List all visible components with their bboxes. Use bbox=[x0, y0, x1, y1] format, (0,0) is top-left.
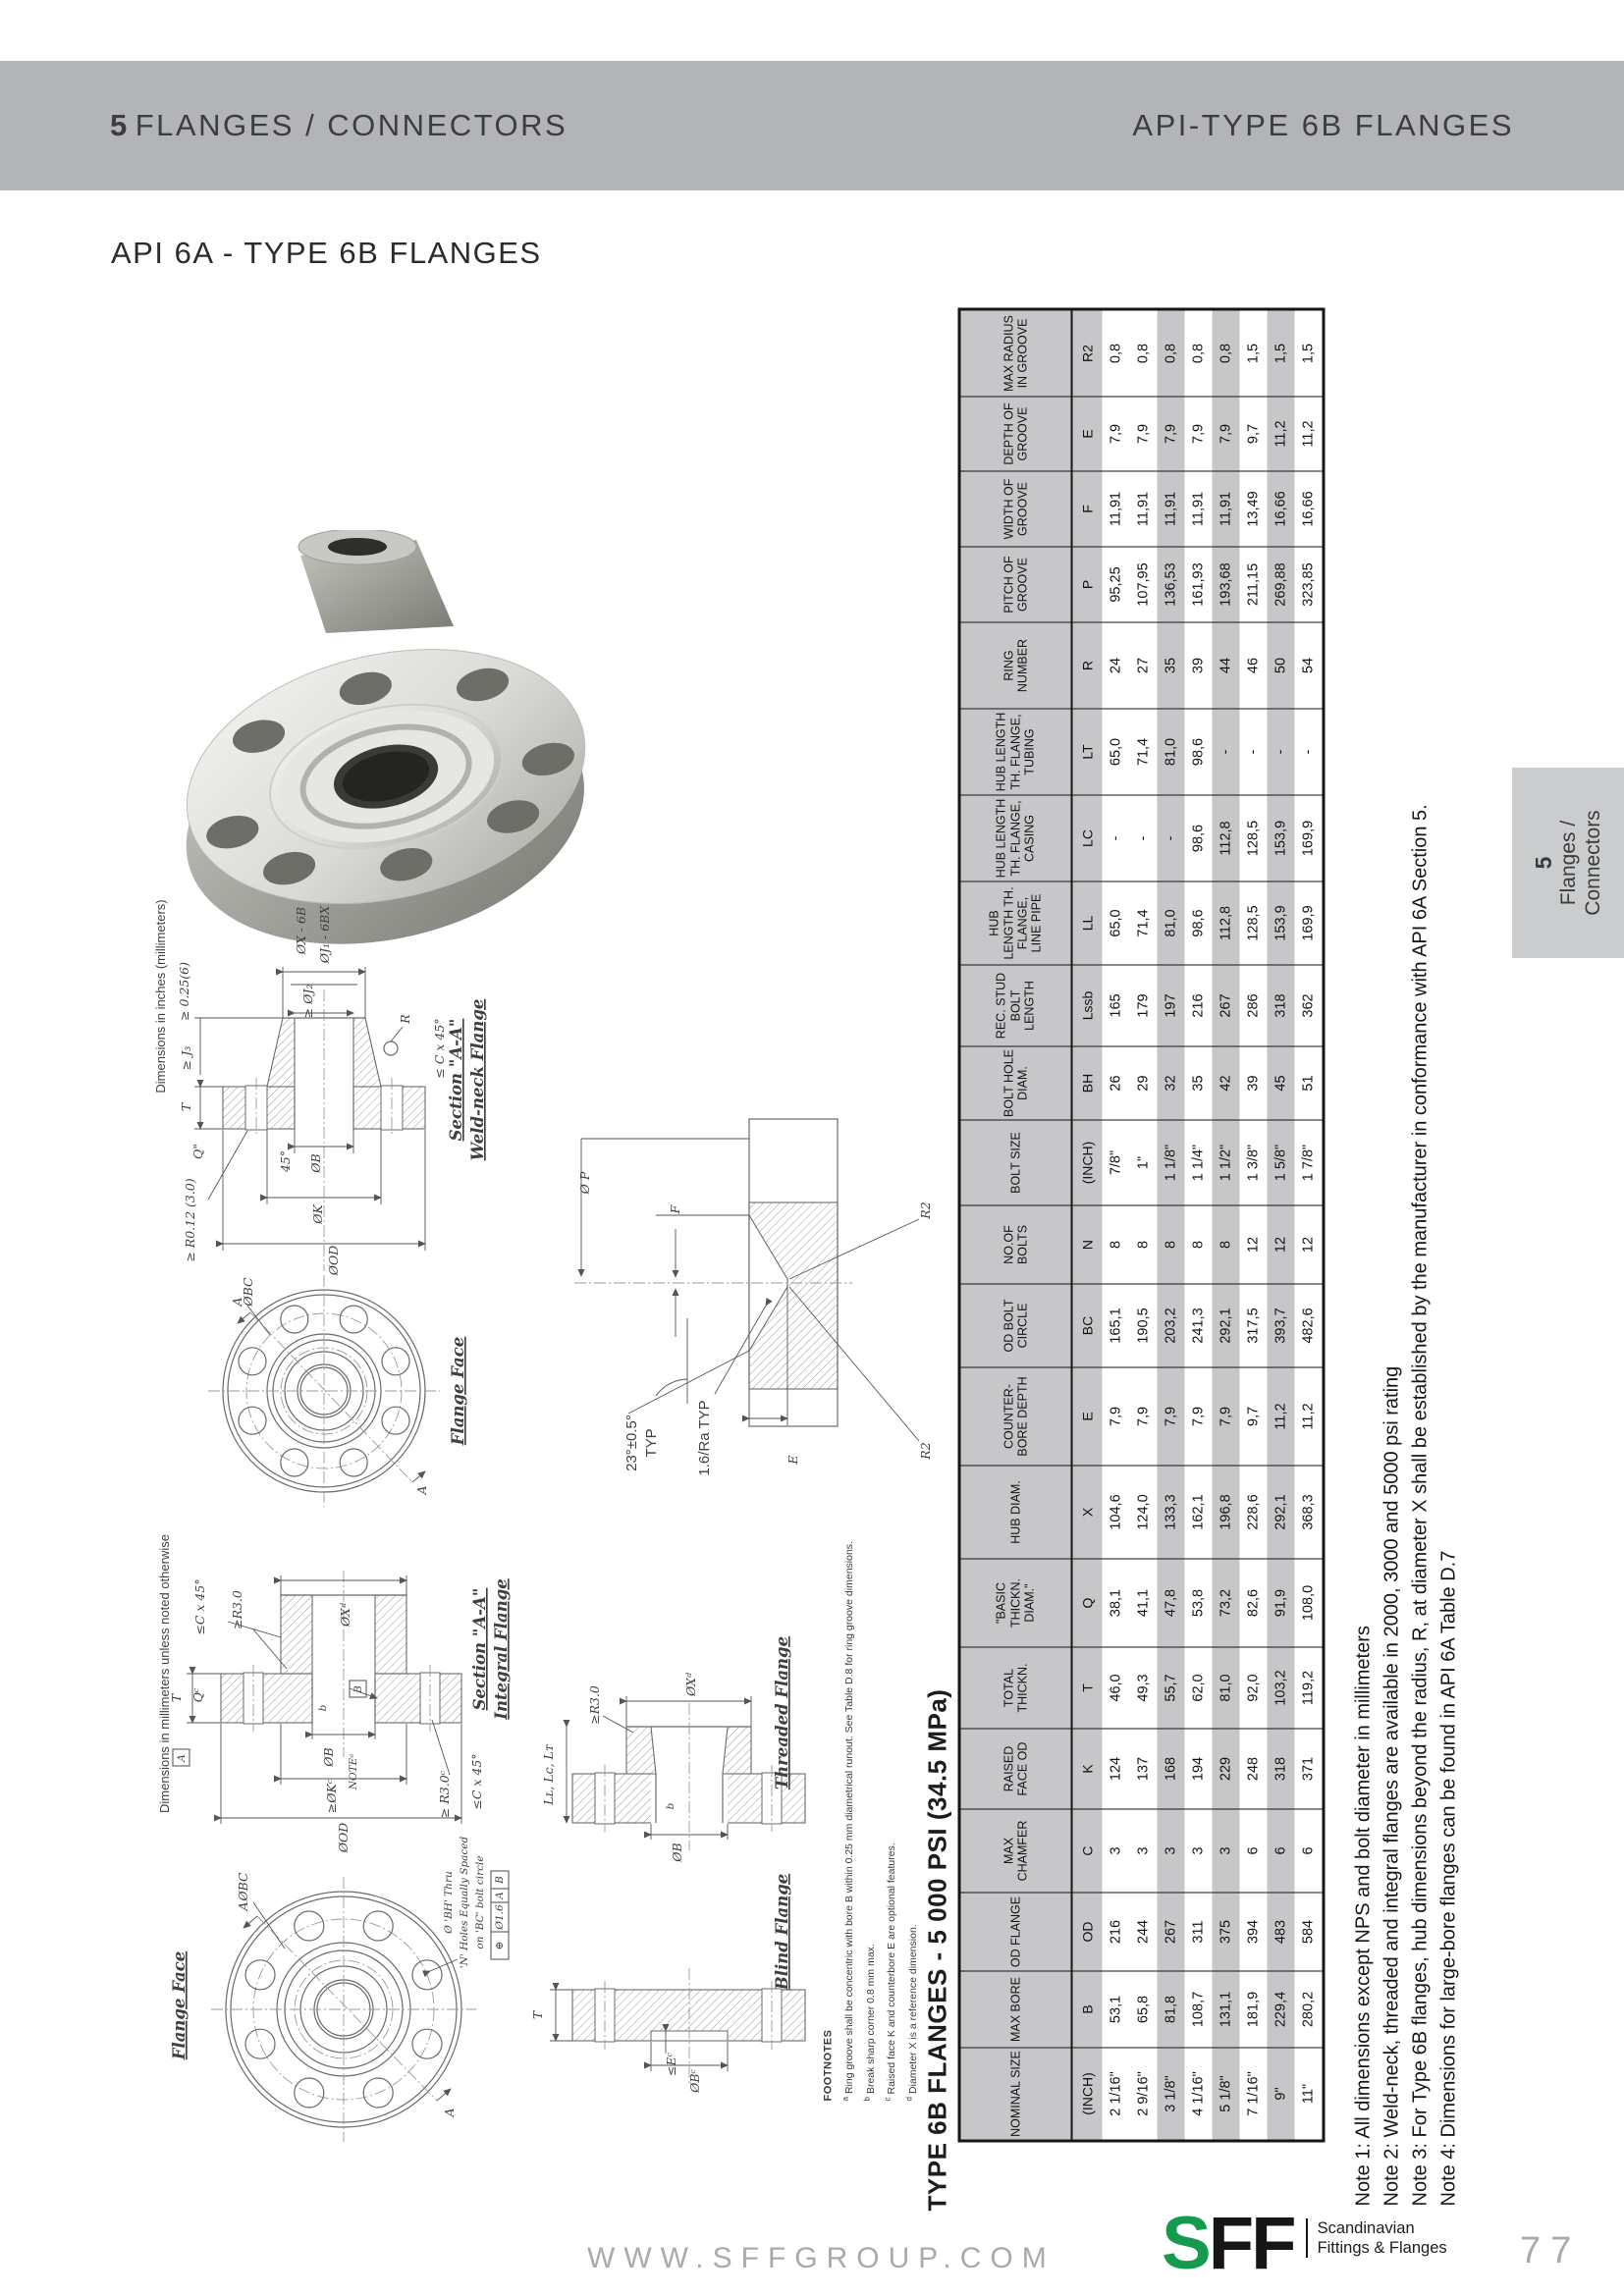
table-cell: 241,3 bbox=[1185, 1284, 1213, 1367]
column-label: PITCH OF GROOVE bbox=[959, 547, 1072, 622]
table-cell: 248 bbox=[1240, 1729, 1268, 1809]
column-label: HUB DIAM. bbox=[959, 1466, 1072, 1559]
footnotes-block: FOOTNOTES aRing groove shall be concentr… bbox=[823, 1513, 926, 2102]
table-title: TYPE 6B FLANGES - 5 000 PSI (34.5 MPa) bbox=[923, 1689, 953, 2212]
gdt-position-symbol: ⊕ bbox=[494, 1942, 506, 1950]
table-cell: 323,85 bbox=[1295, 547, 1325, 622]
integral-leader-b: b bbox=[317, 1704, 329, 1711]
integral-dim-c45: ≤C x 45° bbox=[192, 1578, 207, 1634]
table-cell: 6 bbox=[1295, 1809, 1325, 1893]
side-tab-number: 5 bbox=[1531, 768, 1556, 958]
table-cell: 1 1/2" bbox=[1213, 1120, 1240, 1205]
threaded-dim-l: Lʟ, Lᴄ, Lᴛ bbox=[541, 1743, 556, 1806]
footnotes-heading: FOOTNOTES bbox=[823, 1513, 835, 2102]
gdt-datum-a: A bbox=[494, 1892, 506, 1900]
table-cell: 54 bbox=[1295, 622, 1325, 709]
header-section-number: 5 bbox=[110, 108, 130, 142]
table-cell: 11,2 bbox=[1268, 1367, 1295, 1466]
table-cell: 11,91 bbox=[1103, 471, 1130, 547]
column-symbol: R2 bbox=[1072, 309, 1103, 397]
table-cell: 8 bbox=[1103, 1205, 1130, 1284]
table-cell: 229 bbox=[1213, 1729, 1240, 1809]
groove-angle: 23°±0.5° bbox=[623, 1415, 640, 1471]
table-cell: 1" bbox=[1130, 1120, 1158, 1205]
table-cell: 92,0 bbox=[1240, 1647, 1268, 1729]
column-symbol: T bbox=[1072, 1647, 1103, 1729]
column-label: NO.OF BOLTS bbox=[959, 1205, 1072, 1284]
table-cell: 179 bbox=[1130, 965, 1158, 1046]
table-cell: 46,0 bbox=[1103, 1647, 1130, 1729]
column-symbol: B bbox=[1072, 1971, 1103, 2048]
integral-section-drawing: Dimensions in millimeters unless noted o… bbox=[157, 1534, 511, 1853]
table-cell: 3 bbox=[1185, 1809, 1213, 1893]
table-cell: 7,9 bbox=[1158, 1367, 1185, 1466]
weldneck-dim-45: 45° bbox=[278, 1150, 293, 1173]
column-label: NOMINAL SIZE bbox=[959, 2048, 1072, 2141]
column-symbol: LC bbox=[1072, 795, 1103, 881]
header-bar: 5FLANGES / CONNECTORS API-TYPE 6B FLANGE… bbox=[0, 61, 1624, 190]
table-cell: 161,93 bbox=[1185, 547, 1213, 622]
table-cell: 7,9 bbox=[1103, 397, 1130, 471]
weldneck-caption-2: Weld-neck Flange bbox=[468, 999, 487, 1161]
table-cell: - bbox=[1213, 709, 1240, 795]
table-symbol-row: (INCH)BODCKTQXEBCN(INCH)BHLssbLLLCLTRPFE… bbox=[1072, 309, 1103, 2141]
weldneck-caption-1: Section "A-A" bbox=[447, 1019, 465, 1142]
table-cell: 229,4 bbox=[1268, 1971, 1295, 2048]
table-cell: 3 bbox=[1213, 1809, 1240, 1893]
sff-logo: SFF Scandinavian Fittings & Flanges bbox=[1162, 2207, 1447, 2281]
sff-logo-word: SFF bbox=[1162, 2207, 1294, 2281]
weldneck-dim-025: ≥ 0.25(6) bbox=[177, 962, 191, 1021]
table-cell: - bbox=[1103, 795, 1130, 881]
integral-caption-2: Integral Flange bbox=[492, 1578, 511, 1720]
table-cell: 368,3 bbox=[1295, 1466, 1325, 1559]
table-cell: 216 bbox=[1185, 965, 1213, 1046]
table-cell: 394 bbox=[1240, 1893, 1268, 1971]
table-cell: 11,91 bbox=[1130, 471, 1158, 547]
column-symbol: X bbox=[1072, 1466, 1103, 1559]
table-cell: 119,2 bbox=[1295, 1647, 1325, 1729]
footnote-line: cRaised face K and counterbore E are opt… bbox=[880, 1513, 901, 2102]
table-cell: 41,1 bbox=[1130, 1559, 1158, 1647]
table-cell: 38,1 bbox=[1103, 1559, 1130, 1647]
table-cell: 7 1/16" bbox=[1240, 2048, 1268, 2141]
ff-top-caption: Flange Face bbox=[449, 1337, 467, 1447]
table-cell: 292,1 bbox=[1268, 1466, 1295, 1559]
table-cell: 292,1 bbox=[1213, 1284, 1240, 1367]
table-cell: 49,3 bbox=[1130, 1647, 1158, 1729]
table-cell: 65,8 bbox=[1130, 1971, 1158, 2048]
column-label: BOLT HOLE DIAM. bbox=[959, 1046, 1072, 1120]
integral-dim-c45b: ≤C x 45° bbox=[469, 1753, 484, 1809]
table-cell: 6 bbox=[1240, 1809, 1268, 1893]
table-cell: 9" bbox=[1268, 2048, 1295, 2141]
table-cell: 9,7 bbox=[1240, 397, 1268, 471]
groove-angle-typ: TYP bbox=[643, 1428, 660, 1457]
threaded-dim-x: ØXᵈ bbox=[683, 1673, 698, 1697]
table-cell: 55,7 bbox=[1158, 1647, 1185, 1729]
table-cell: 244 bbox=[1130, 1893, 1158, 1971]
table-cell: 2 1/16" bbox=[1103, 2048, 1130, 2141]
table-cell: 104,6 bbox=[1103, 1466, 1130, 1559]
weldneck-dim-od: ØOD bbox=[326, 1246, 341, 1277]
header-section-title: 5FLANGES / CONNECTORS bbox=[110, 108, 568, 143]
column-symbol: N bbox=[1072, 1205, 1103, 1284]
ff-bottom-caption: Flange Face bbox=[170, 1951, 189, 2061]
table-cell: 7,9 bbox=[1213, 1367, 1240, 1466]
column-label: RAISED FACE OD bbox=[959, 1729, 1072, 1809]
integral-note-a: NOTEᵃ bbox=[348, 1754, 359, 1790]
integral-dim-bb: ØB bbox=[321, 1747, 336, 1767]
table-cell: 12 bbox=[1268, 1205, 1295, 1284]
column-symbol: (INCH) bbox=[1072, 2048, 1103, 2141]
table-cell: 7,9 bbox=[1130, 397, 1158, 471]
table-row: 5 1/8"131,1375322981,073,2196,87,9292,18… bbox=[1213, 309, 1240, 2141]
table-cell: 153,9 bbox=[1268, 881, 1295, 965]
table-cell: 584 bbox=[1295, 1893, 1325, 1971]
table-header-row: NOMINAL SIZEMAX BOREOD FLANGEMAX CHAMFER… bbox=[959, 309, 1072, 2141]
table-cell: 0,8 bbox=[1130, 309, 1158, 397]
table-cell: 8 bbox=[1185, 1205, 1213, 1284]
table-row: 2 1/16"53,1216312446,038,1104,67,9165,18… bbox=[1103, 309, 1130, 2141]
table-cell: 1 7/8" bbox=[1295, 1120, 1325, 1205]
table-cell: 228,6 bbox=[1240, 1466, 1268, 1559]
flange-dimensions-table: NOMINAL SIZEMAX BOREOD FLANGEMAX CHAMFER… bbox=[958, 308, 1326, 2143]
table-cell: 133,3 bbox=[1158, 1466, 1185, 1559]
page-title: API 6A - TYPE 6B FLANGES bbox=[111, 236, 542, 271]
table-cell: 7,9 bbox=[1130, 1367, 1158, 1466]
table-cell: 11,2 bbox=[1295, 397, 1325, 471]
ff-bottom-callout-2: 'N' Holes Equally Spaced bbox=[459, 1836, 470, 1968]
table-cell: 7,9 bbox=[1185, 1367, 1213, 1466]
table-cell: 107,95 bbox=[1130, 547, 1158, 622]
table-cell: 39 bbox=[1185, 622, 1213, 709]
table-cell: 267 bbox=[1158, 1893, 1185, 1971]
table-cell: 0,8 bbox=[1103, 309, 1130, 397]
table-cell: 32 bbox=[1158, 1046, 1185, 1120]
table-cell: 27 bbox=[1130, 622, 1158, 709]
table-cell: 168 bbox=[1158, 1729, 1185, 1809]
note-line: Note 1: All dimensions except NPS and bo… bbox=[1350, 804, 1379, 2206]
table-cell: 196,8 bbox=[1213, 1466, 1240, 1559]
column-label: HUB LENGTH TH. FLANGE, LINE PIPE bbox=[959, 881, 1072, 965]
side-tab-flanges-connectors: 5 Flanges / Connectors bbox=[1512, 768, 1624, 958]
table-cell: 65,0 bbox=[1103, 881, 1130, 965]
flange-photo bbox=[152, 530, 620, 981]
column-symbol: P bbox=[1072, 547, 1103, 622]
table-cell: 16,66 bbox=[1268, 471, 1295, 547]
table-cell: 29 bbox=[1130, 1046, 1158, 1120]
ff-bottom-letter-a2: A bbox=[442, 2108, 457, 2117]
table-cell: 11,2 bbox=[1295, 1367, 1325, 1466]
integral-dim-q: Qᶜ bbox=[190, 1687, 205, 1702]
column-symbol: LT bbox=[1072, 709, 1103, 795]
integral-dim-od: ØOD bbox=[336, 1823, 351, 1854]
table-cell: 71,4 bbox=[1130, 881, 1158, 965]
table-cell: 98,6 bbox=[1185, 709, 1213, 795]
table-cell: 12 bbox=[1240, 1205, 1268, 1284]
table-cell: 269,88 bbox=[1268, 547, 1295, 622]
column-label: DEPTH OF GROOVE bbox=[959, 397, 1072, 471]
table-row: 4 1/16"108,7311319462,053,8162,17,9241,3… bbox=[1185, 309, 1213, 2141]
table-cell: 131,1 bbox=[1213, 1971, 1240, 2048]
column-label: RING NUMBER bbox=[959, 622, 1072, 709]
table-cell: 1 1/8" bbox=[1158, 1120, 1185, 1205]
table-cell: - bbox=[1130, 795, 1158, 881]
table-cell: 137 bbox=[1130, 1729, 1158, 1809]
table-cell: 190,5 bbox=[1130, 1284, 1158, 1367]
ff-bottom-callout-3: on 'BC' bolt circle bbox=[474, 1855, 486, 1949]
groove-ra: 1.6/Ra TYP bbox=[696, 1400, 713, 1475]
groove-dim-f: F bbox=[668, 1203, 682, 1214]
table-cell: 1,5 bbox=[1295, 309, 1325, 397]
groove-dim-e: E bbox=[785, 1455, 800, 1465]
blind-dim-t: T bbox=[530, 2009, 545, 2019]
table-cell: 108,0 bbox=[1295, 1559, 1325, 1647]
table-cell: 103,2 bbox=[1268, 1647, 1295, 1729]
footnote-line: bBreak sharp corner 0.8 mm max. bbox=[858, 1513, 880, 2102]
column-label: OD BOLT CIRCLE bbox=[959, 1284, 1072, 1367]
column-symbol: (INCH) bbox=[1072, 1120, 1103, 1205]
table-cell: 197 bbox=[1158, 965, 1185, 1046]
table-cell: 112,8 bbox=[1213, 795, 1240, 881]
table-cell: 112,8 bbox=[1213, 881, 1240, 965]
table-cell: 267 bbox=[1213, 965, 1240, 1046]
column-label: HUB LENGTH TH. FLANGE, TUBING bbox=[959, 709, 1072, 795]
table-cell: - bbox=[1295, 709, 1325, 795]
table-cell: 39 bbox=[1240, 1046, 1268, 1120]
table-cell: 371 bbox=[1295, 1729, 1325, 1809]
ff-bottom-dim-bc: ØBC bbox=[236, 1872, 250, 1902]
catalog-page: 5FLANGES / CONNECTORS API-TYPE 6B FLANGE… bbox=[0, 0, 1624, 2296]
table-cell: 4 1/16" bbox=[1185, 2048, 1213, 2141]
table-cell: 108,7 bbox=[1185, 1971, 1213, 2048]
column-symbol: C bbox=[1072, 1809, 1103, 1893]
table-cell: 211,15 bbox=[1240, 547, 1268, 622]
table-cell: 81,8 bbox=[1158, 1971, 1185, 2048]
column-symbol: Q bbox=[1072, 1559, 1103, 1647]
column-symbol: BH bbox=[1072, 1046, 1103, 1120]
page-number: 77 bbox=[1520, 2230, 1581, 2272]
table-cell: 24 bbox=[1103, 622, 1130, 709]
table-cell: 128,5 bbox=[1240, 795, 1268, 881]
table-cell: 128,5 bbox=[1240, 881, 1268, 965]
table-cell: 65,0 bbox=[1103, 709, 1130, 795]
table-cell: 0,8 bbox=[1158, 309, 1185, 397]
table-cell: 47,8 bbox=[1158, 1559, 1185, 1647]
weldneck-dim-j2: ≥ ØJ₂ bbox=[300, 985, 315, 1019]
table-cell: 11,2 bbox=[1268, 397, 1295, 471]
table-cell: 95,25 bbox=[1103, 547, 1130, 622]
weldneck-dim-t: T bbox=[179, 1101, 193, 1111]
sff-logo-subtitle: Scandinavian Fittings & Flanges bbox=[1306, 2218, 1447, 2258]
threaded-dim-bb: ØB bbox=[670, 1842, 684, 1862]
table-notes: Note 1: All dimensions except NPS and bo… bbox=[1350, 804, 1464, 2206]
weldneck-dim-j3: ≥ J₃ bbox=[179, 1046, 193, 1070]
table-cell: 53,1 bbox=[1103, 1971, 1130, 2048]
logo-letter-s: S bbox=[1162, 2202, 1209, 2285]
ff-bottom-letter-a1: A bbox=[236, 1901, 250, 1911]
gdt-datum-b: B bbox=[494, 1876, 506, 1885]
table-cell: 16,66 bbox=[1295, 471, 1325, 547]
column-symbol: LL bbox=[1072, 881, 1103, 965]
table-cell: 1 3/8" bbox=[1240, 1120, 1268, 1205]
table-cell: 11,91 bbox=[1213, 471, 1240, 547]
table-cell: 3 bbox=[1103, 1809, 1130, 1893]
blind-section-drawing: ≤Eᶜ ØBᶜ T Blind Flange bbox=[530, 1874, 805, 2094]
threaded-caption: Threaded Flange bbox=[773, 1636, 791, 1789]
column-label: TOTAL THICKN. bbox=[959, 1647, 1072, 1729]
column-symbol: E bbox=[1072, 397, 1103, 471]
integral-dim-x: ØXᵈ bbox=[338, 1603, 352, 1628]
table-cell: 3 bbox=[1130, 1809, 1158, 1893]
weldneck-dim-q: Q" bbox=[190, 1144, 205, 1159]
column-label: MAX RADIUS IN GROOVE bbox=[959, 309, 1072, 397]
dims-note-inches: Dimensions in inches (millimeters) bbox=[153, 899, 168, 1093]
table-cell: - bbox=[1268, 709, 1295, 795]
ring-groove-detail-drawing: Ø P F 23°±0.5° TYP 1.6/Ra TYP E R2 R2 bbox=[574, 1119, 933, 1476]
weldneck-dim-r: R bbox=[398, 1014, 412, 1024]
column-label: REC. STUD BOLT LENGTH bbox=[959, 965, 1072, 1046]
column-symbol: K bbox=[1072, 1729, 1103, 1809]
footnote-line: dDiameter X is a reference dimension. bbox=[900, 1513, 922, 2102]
table-cell: 0,8 bbox=[1185, 309, 1213, 397]
table-cell: 81,0 bbox=[1213, 1647, 1240, 1729]
table-cell: 482,6 bbox=[1295, 1284, 1325, 1367]
table-cell: 1,5 bbox=[1240, 309, 1268, 397]
table-cell: 153,9 bbox=[1268, 795, 1295, 881]
table-cell: 124,0 bbox=[1130, 1466, 1158, 1559]
table-cell: 169,9 bbox=[1295, 795, 1325, 881]
integral-dim-r3: ≥R3.0 bbox=[230, 1590, 244, 1629]
threaded-leader-b: b bbox=[665, 1802, 677, 1809]
column-label: MAX CHAMFER bbox=[959, 1809, 1072, 1893]
weldneck-dim-r012: ≥ R0.12 (3.0) bbox=[183, 1178, 197, 1261]
table-cell: 286 bbox=[1240, 965, 1268, 1046]
weldneck-dim-k: ØK bbox=[310, 1204, 325, 1225]
table-row: 3 1/8"81,8267316855,747,8133,37,9203,281… bbox=[1158, 309, 1185, 2141]
table-cell: 82,6 bbox=[1240, 1559, 1268, 1647]
flange-face-bottom-drawing: A A ØBC Flange Face Ø 'BH' Thru 'N' Hole… bbox=[170, 1836, 509, 2142]
blind-caption: Blind Flange bbox=[773, 1874, 791, 1991]
threaded-section-drawing: ≥R3.0 ØXᵈ b ØB Lʟ, Lᴄ, Lᴛ Threaded Flang… bbox=[541, 1636, 805, 1863]
column-symbol: OD bbox=[1072, 1893, 1103, 1971]
table-cell: 311 bbox=[1185, 1893, 1213, 1971]
table-cell: 6 bbox=[1268, 1809, 1295, 1893]
table-cell: 375 bbox=[1213, 1893, 1240, 1971]
table-cell: 165 bbox=[1103, 965, 1130, 1046]
table-cell: 42 bbox=[1213, 1046, 1240, 1120]
table-cell: 181,9 bbox=[1240, 1971, 1268, 2048]
table-cell: 46 bbox=[1240, 622, 1268, 709]
table-cell: 81,0 bbox=[1158, 881, 1185, 965]
table-cell: 7,9 bbox=[1103, 1367, 1130, 1466]
table-cell: 193,68 bbox=[1213, 547, 1240, 622]
note-line: Note 3: For Type 6B flanges, hub dimensi… bbox=[1407, 804, 1435, 2206]
table-cell: 7/8" bbox=[1103, 1120, 1130, 1205]
column-label: "BASIC THICKN. DIAM." bbox=[959, 1559, 1072, 1647]
table-cell: 3 1/8" bbox=[1158, 2048, 1185, 2141]
table-cell: 3 bbox=[1158, 1809, 1185, 1893]
table-cell: 216 bbox=[1103, 1893, 1130, 1971]
table-cell: 81,0 bbox=[1158, 709, 1185, 795]
table-cell: 51 bbox=[1295, 1046, 1325, 1120]
table-cell: 8 bbox=[1158, 1205, 1185, 1284]
column-symbol: BC bbox=[1072, 1284, 1103, 1367]
ff-top-dim-bc: ØBC bbox=[241, 1277, 255, 1308]
table-cell: 124 bbox=[1103, 1729, 1130, 1809]
header-chapter-title: API-TYPE 6B FLANGES bbox=[1132, 108, 1514, 143]
table-cell: 7,9 bbox=[1185, 397, 1213, 471]
column-label: MAX BORE bbox=[959, 1971, 1072, 2048]
threaded-dim-r3: ≥R3.0 bbox=[587, 1685, 602, 1725]
table-row: 11"280,25846371119,2108,0368,311,2482,61… bbox=[1295, 309, 1325, 2141]
table-row: 2 9/16"65,8244313749,341,1124,07,9190,58… bbox=[1130, 309, 1158, 2141]
table-cell: - bbox=[1158, 795, 1185, 881]
table-cell: 44 bbox=[1213, 622, 1240, 709]
weldneck-dim-x: ØX - 6B bbox=[294, 907, 308, 955]
table-cell: 71,4 bbox=[1130, 709, 1158, 795]
ff-bottom-callout-1: Ø 'BH' Thru bbox=[443, 1871, 455, 1935]
table-cell: 12 bbox=[1295, 1205, 1325, 1284]
footer-website: WWW.SFFGROUP.COM bbox=[587, 2242, 1056, 2275]
column-symbol: E bbox=[1072, 1367, 1103, 1466]
integral-datum-a: A bbox=[176, 1754, 188, 1763]
table-cell: 362 bbox=[1295, 965, 1325, 1046]
table-cell: 35 bbox=[1185, 1046, 1213, 1120]
table-cell: 98,6 bbox=[1185, 795, 1213, 881]
table-cell: 7,9 bbox=[1213, 397, 1240, 471]
table-cell: 62,0 bbox=[1185, 1647, 1213, 1729]
table-cell: 26 bbox=[1103, 1046, 1130, 1120]
blind-dim-e: ≤Eᶜ bbox=[664, 2052, 678, 2076]
table-cell: 1 5/8" bbox=[1268, 1120, 1295, 1205]
table-cell: 1 1/4" bbox=[1185, 1120, 1213, 1205]
table-cell: 0,8 bbox=[1213, 309, 1240, 397]
table-cell: 2 9/16" bbox=[1130, 2048, 1158, 2141]
table-cell: 194 bbox=[1185, 1729, 1213, 1809]
table-cell: 45 bbox=[1268, 1046, 1295, 1120]
integral-caption-1: Section "A-A" bbox=[470, 1588, 489, 1711]
table-cell: 162,1 bbox=[1185, 1466, 1213, 1559]
table-cell: 136,53 bbox=[1158, 547, 1185, 622]
table-cell: 318 bbox=[1268, 965, 1295, 1046]
table-cell: 50 bbox=[1268, 622, 1295, 709]
integral-dim-r3c: ≥ R3.0ᶜ bbox=[437, 1770, 452, 1818]
table-cell: 165,1 bbox=[1103, 1284, 1130, 1367]
table-cell: 8 bbox=[1130, 1205, 1158, 1284]
table-cell: 280,2 bbox=[1295, 1971, 1325, 2048]
table-cell: 98,6 bbox=[1185, 881, 1213, 965]
table-cell: 13,49 bbox=[1240, 471, 1268, 547]
column-symbol: R bbox=[1072, 622, 1103, 709]
table-cell: - bbox=[1240, 709, 1268, 795]
integral-dim-k: ≥ØKᶜ bbox=[324, 1779, 339, 1813]
table-cell: 393,7 bbox=[1268, 1284, 1295, 1367]
table-cell: 11,91 bbox=[1185, 471, 1213, 547]
table-cell: 8 bbox=[1213, 1205, 1240, 1284]
dims-note-mm: Dimensions in millimeters unless noted o… bbox=[157, 1534, 172, 1813]
side-tab-label: 5 Flanges / Connectors bbox=[1512, 768, 1624, 958]
groove-dim-p: Ø P bbox=[577, 1171, 592, 1195]
flange-face-top-drawing: A A ØBC Flange Face bbox=[208, 1275, 467, 1507]
column-label: HUB LENGTH TH. FLANGE, CASING bbox=[959, 795, 1072, 881]
note-line: Note 2: Weld-neck, threaded and integral… bbox=[1379, 804, 1407, 2206]
logo-letters-ff: FF bbox=[1209, 2202, 1294, 2285]
gdt-tolerance: Ø1.6 bbox=[494, 1904, 506, 1931]
weldneck-section-drawing: Dimensions in inches (millimeters) ØX - … bbox=[153, 899, 487, 1276]
column-symbol: F bbox=[1072, 471, 1103, 547]
